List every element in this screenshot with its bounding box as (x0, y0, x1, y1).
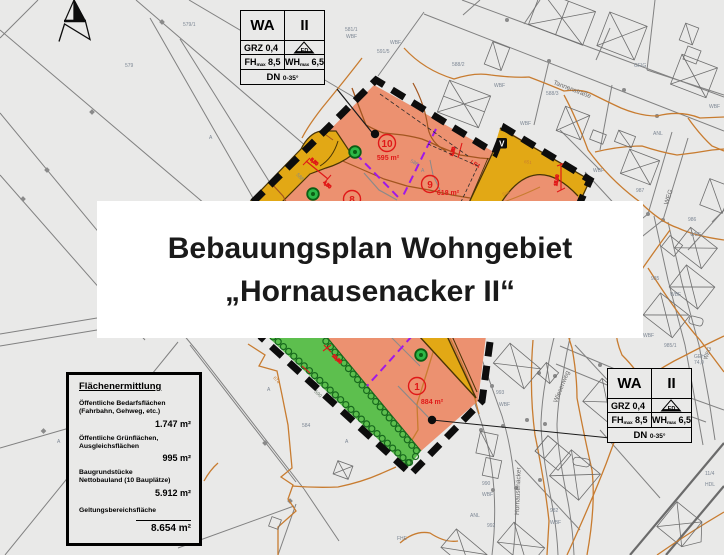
svg-text:WBF: WBF (670, 292, 681, 298)
svg-text:987: 987 (636, 188, 645, 194)
svg-text:588/3: 588/3 (546, 91, 559, 97)
svg-text:985/1: 985/1 (664, 343, 677, 349)
svg-text:588/2: 588/2 (452, 62, 465, 68)
svg-text:WBF: WBF (390, 40, 401, 46)
svg-text:9: 9 (427, 180, 433, 191)
svg-text:579/1: 579/1 (183, 22, 196, 28)
svg-text:1: 1 (414, 382, 420, 393)
svg-text:591/5: 591/5 (377, 49, 390, 55)
svg-text:ANL: ANL (470, 513, 480, 519)
svg-text:WBF: WBF (346, 34, 357, 40)
svg-text:11/4: 11/4 (705, 471, 715, 477)
svg-text:884 m²: 884 m² (421, 399, 444, 406)
svg-text:ED: ED (301, 48, 309, 54)
svg-text:992: 992 (487, 523, 496, 529)
svg-text:WBF: WBF (709, 104, 720, 110)
svg-text:584: 584 (302, 423, 311, 429)
svg-text:10: 10 (381, 139, 393, 150)
svg-text:993: 993 (496, 390, 505, 396)
svg-text:595 m²: 595 m² (377, 155, 400, 162)
svg-text:WBF: WBF (690, 232, 701, 238)
svg-text:WBF: WBF (550, 520, 561, 526)
svg-text:985: 985 (651, 276, 660, 282)
svg-text:WBF: WBF (643, 333, 654, 339)
svg-text:ANL: ANL (653, 131, 663, 137)
svg-text:ED: ED (668, 406, 676, 412)
svg-text:74,0: 74,0 (694, 360, 704, 366)
svg-text:581/1: 581/1 (345, 27, 358, 33)
svg-text:618 m²: 618 m² (437, 190, 460, 197)
svg-text:GFIG: GFIG (634, 63, 646, 69)
svg-text:986: 986 (688, 217, 697, 223)
svg-text:WBF: WBF (593, 168, 604, 174)
svg-text:HDL: HDL (705, 482, 715, 488)
svg-text:579: 579 (125, 63, 134, 69)
svg-text:WBF: WBF (494, 83, 505, 89)
svg-text:WBF: WBF (520, 121, 531, 127)
svg-text:990: 990 (482, 481, 491, 487)
svg-text:FHE: FHE (397, 536, 408, 542)
svg-text:982: 982 (550, 508, 559, 514)
svg-text:V: V (499, 140, 505, 149)
svg-text:WBF: WBF (482, 492, 493, 498)
svg-text:WBF: WBF (499, 402, 510, 408)
